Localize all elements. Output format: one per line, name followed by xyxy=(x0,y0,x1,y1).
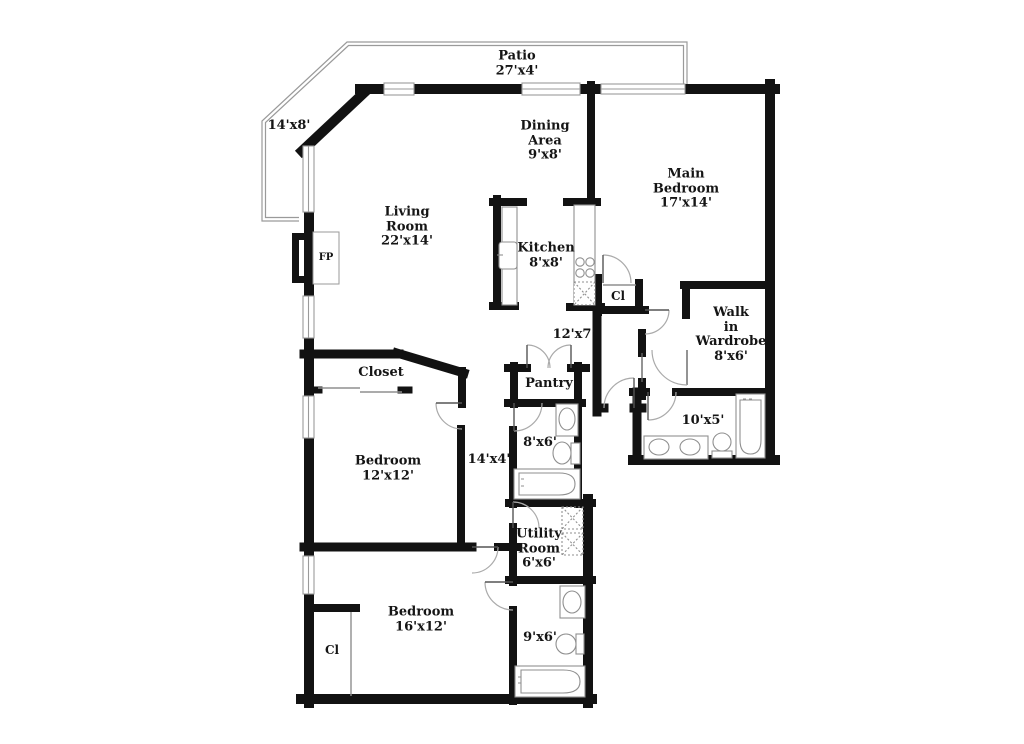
floor-plan: Patio27'x4' 14'x8' LivingRoom22'x14' Din… xyxy=(0,0,1024,744)
room-label-dining-area: DiningArea9'x8' xyxy=(520,119,569,163)
room-label-main-bedroom: MainBedroom17'x14' xyxy=(653,167,719,211)
window-living-left xyxy=(303,296,314,338)
toilet-bowl xyxy=(556,634,576,654)
room-label-bath-hall: 8'x6' xyxy=(523,436,557,451)
door-arc-bath-hall xyxy=(514,403,542,431)
closet-bifold-doors xyxy=(318,388,402,392)
window-dining-top xyxy=(522,83,580,95)
window-bedroom-top xyxy=(601,84,685,94)
room-label-bath2: 9'x6' xyxy=(523,631,557,646)
washer xyxy=(562,507,583,529)
room-label-closet: Closet xyxy=(358,366,404,381)
floor-plan-drawing xyxy=(0,0,1024,744)
room-label-hall-lower: 14'x4' xyxy=(468,453,511,468)
dryer xyxy=(562,533,583,555)
toilet-tank xyxy=(576,634,584,654)
door-arc-wardrobe xyxy=(652,350,687,385)
toilet-bowl xyxy=(713,433,731,451)
room-label-kitchen: Kitchen8'x8' xyxy=(517,242,574,271)
room-label-living-room: LivingRoom22'x14' xyxy=(381,205,433,249)
utility-fixtures xyxy=(562,507,583,555)
sink-left xyxy=(649,439,669,455)
door-arc-bath-main xyxy=(648,392,676,420)
toilet-tank xyxy=(712,451,732,458)
room-label-closet-main: Cl xyxy=(611,289,625,304)
room-label-bath-main: 10'x5' xyxy=(682,414,725,429)
toilet-tank xyxy=(571,443,580,464)
room-label-fireplace: FP xyxy=(319,251,334,266)
windows xyxy=(303,83,685,594)
room-label-balcony: 14'x8' xyxy=(268,119,311,134)
room-label-wardrobe: WalkinWardrobe8'x6' xyxy=(696,306,767,364)
window-bedroom2-left xyxy=(303,396,314,438)
door-arc-closet-main xyxy=(603,255,631,283)
door-arc-bath2 xyxy=(485,582,513,610)
room-label-patio: Patio27'x4' xyxy=(496,50,539,79)
sink-right xyxy=(680,439,700,455)
patio-slider-door xyxy=(303,146,314,212)
window-living-top xyxy=(384,83,414,95)
room-label-bedroom2: Bedroom12'x12' xyxy=(355,455,421,484)
bath-hall-fixtures xyxy=(514,404,580,499)
room-label-bedroom3: Bedroom16'x12' xyxy=(388,606,454,635)
window-bedroom3-left xyxy=(303,556,314,594)
room-label-closet-b3: Cl xyxy=(325,643,339,658)
room-label-pantry: Pantry xyxy=(525,377,573,392)
room-label-utility: UtilityRoom6'x6' xyxy=(516,527,562,571)
sink xyxy=(563,591,581,613)
sink xyxy=(559,408,575,430)
closet-fronts xyxy=(318,285,687,696)
room-label-hall-upper: 12'x7' xyxy=(553,328,596,343)
kitchen-cabinet xyxy=(574,282,595,305)
